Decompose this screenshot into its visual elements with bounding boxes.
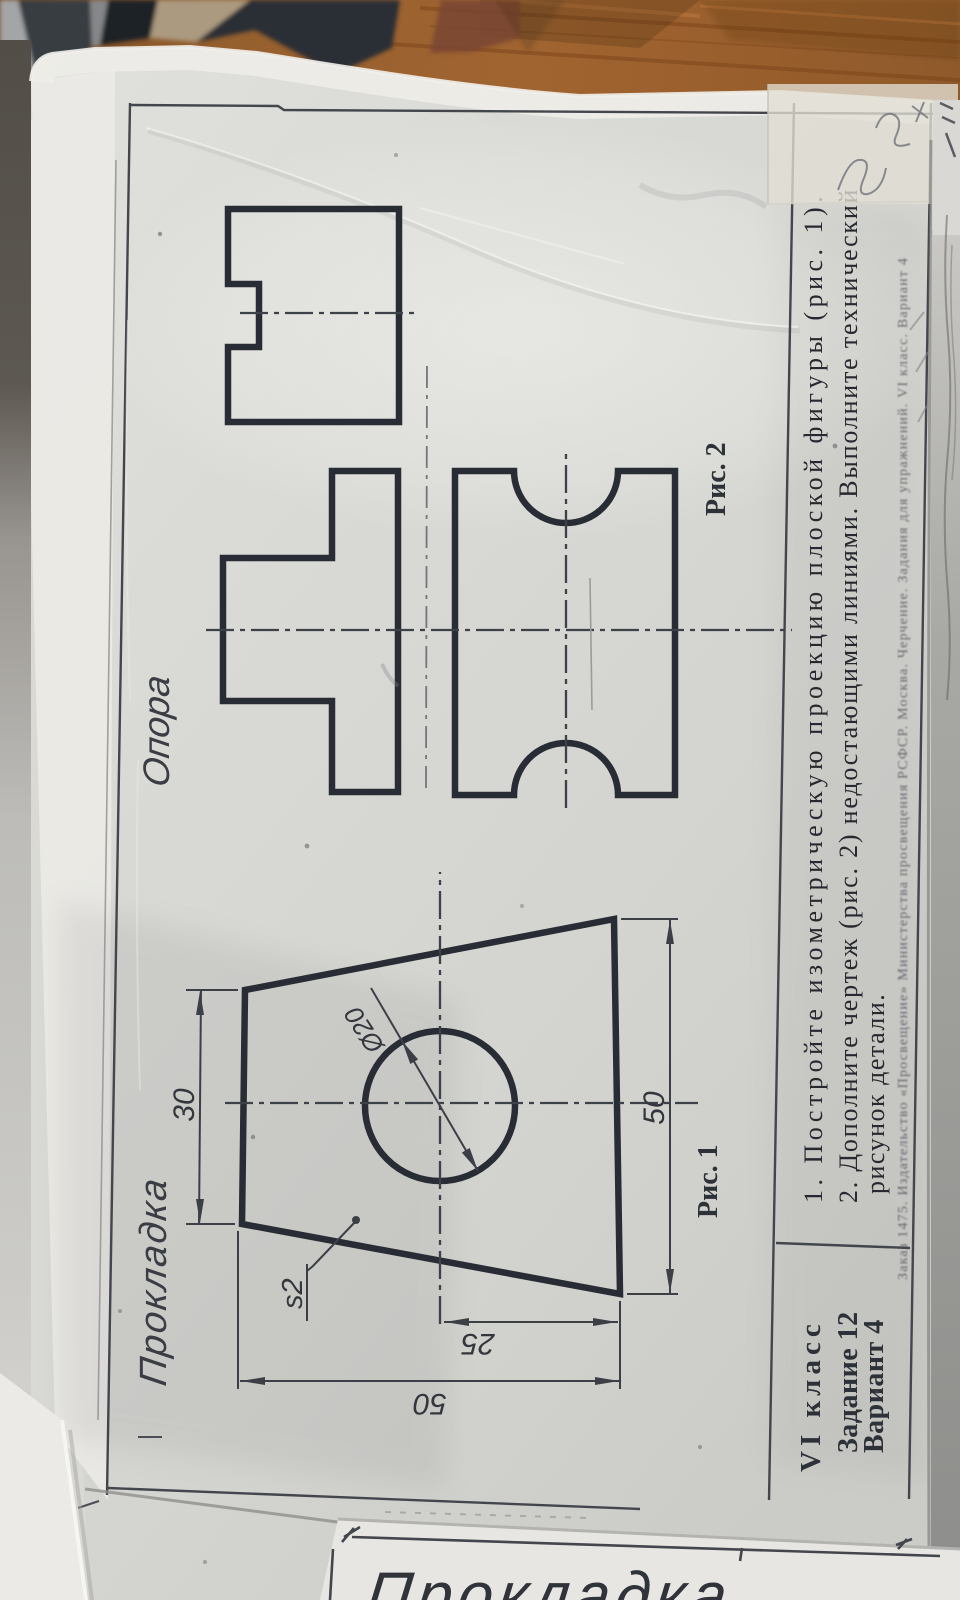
svg-text:Прокладка: Прокладка (362, 1559, 736, 1600)
svg-text:Рис. 1: Рис. 1 (693, 1144, 724, 1218)
svg-text:50: 50 (413, 1387, 447, 1420)
svg-text:VI класс: VI класс (795, 1319, 827, 1472)
svg-text:рисунок детали.: рисунок детали. (861, 993, 890, 1194)
svg-text:30: 30 (168, 1088, 201, 1122)
svg-text:25: 25 (461, 1327, 496, 1360)
svg-text:1. Постройте изометрическую пр: 1. Постройте изометрическую проекцию пло… (799, 192, 828, 1203)
svg-text:2. Дополните чертеж (рис. 2) н: 2. Дополните чертеж (рис. 2) недостающим… (834, 188, 863, 1203)
svg-text:Вариант 4: Вариант 4 (859, 1319, 890, 1453)
svg-text:s2: s2 (277, 1278, 309, 1309)
svg-text:Прокладка: Прокладка (132, 1174, 175, 1388)
svg-text:Опора: Опора (135, 672, 177, 789)
svg-text:Рис. 2: Рис. 2 (701, 442, 732, 516)
svg-text:50: 50 (638, 1091, 671, 1125)
svg-text:Заказ 1475. Издательство «Прос: Заказ 1475. Издательство «Просвещение» М… (896, 257, 911, 1280)
